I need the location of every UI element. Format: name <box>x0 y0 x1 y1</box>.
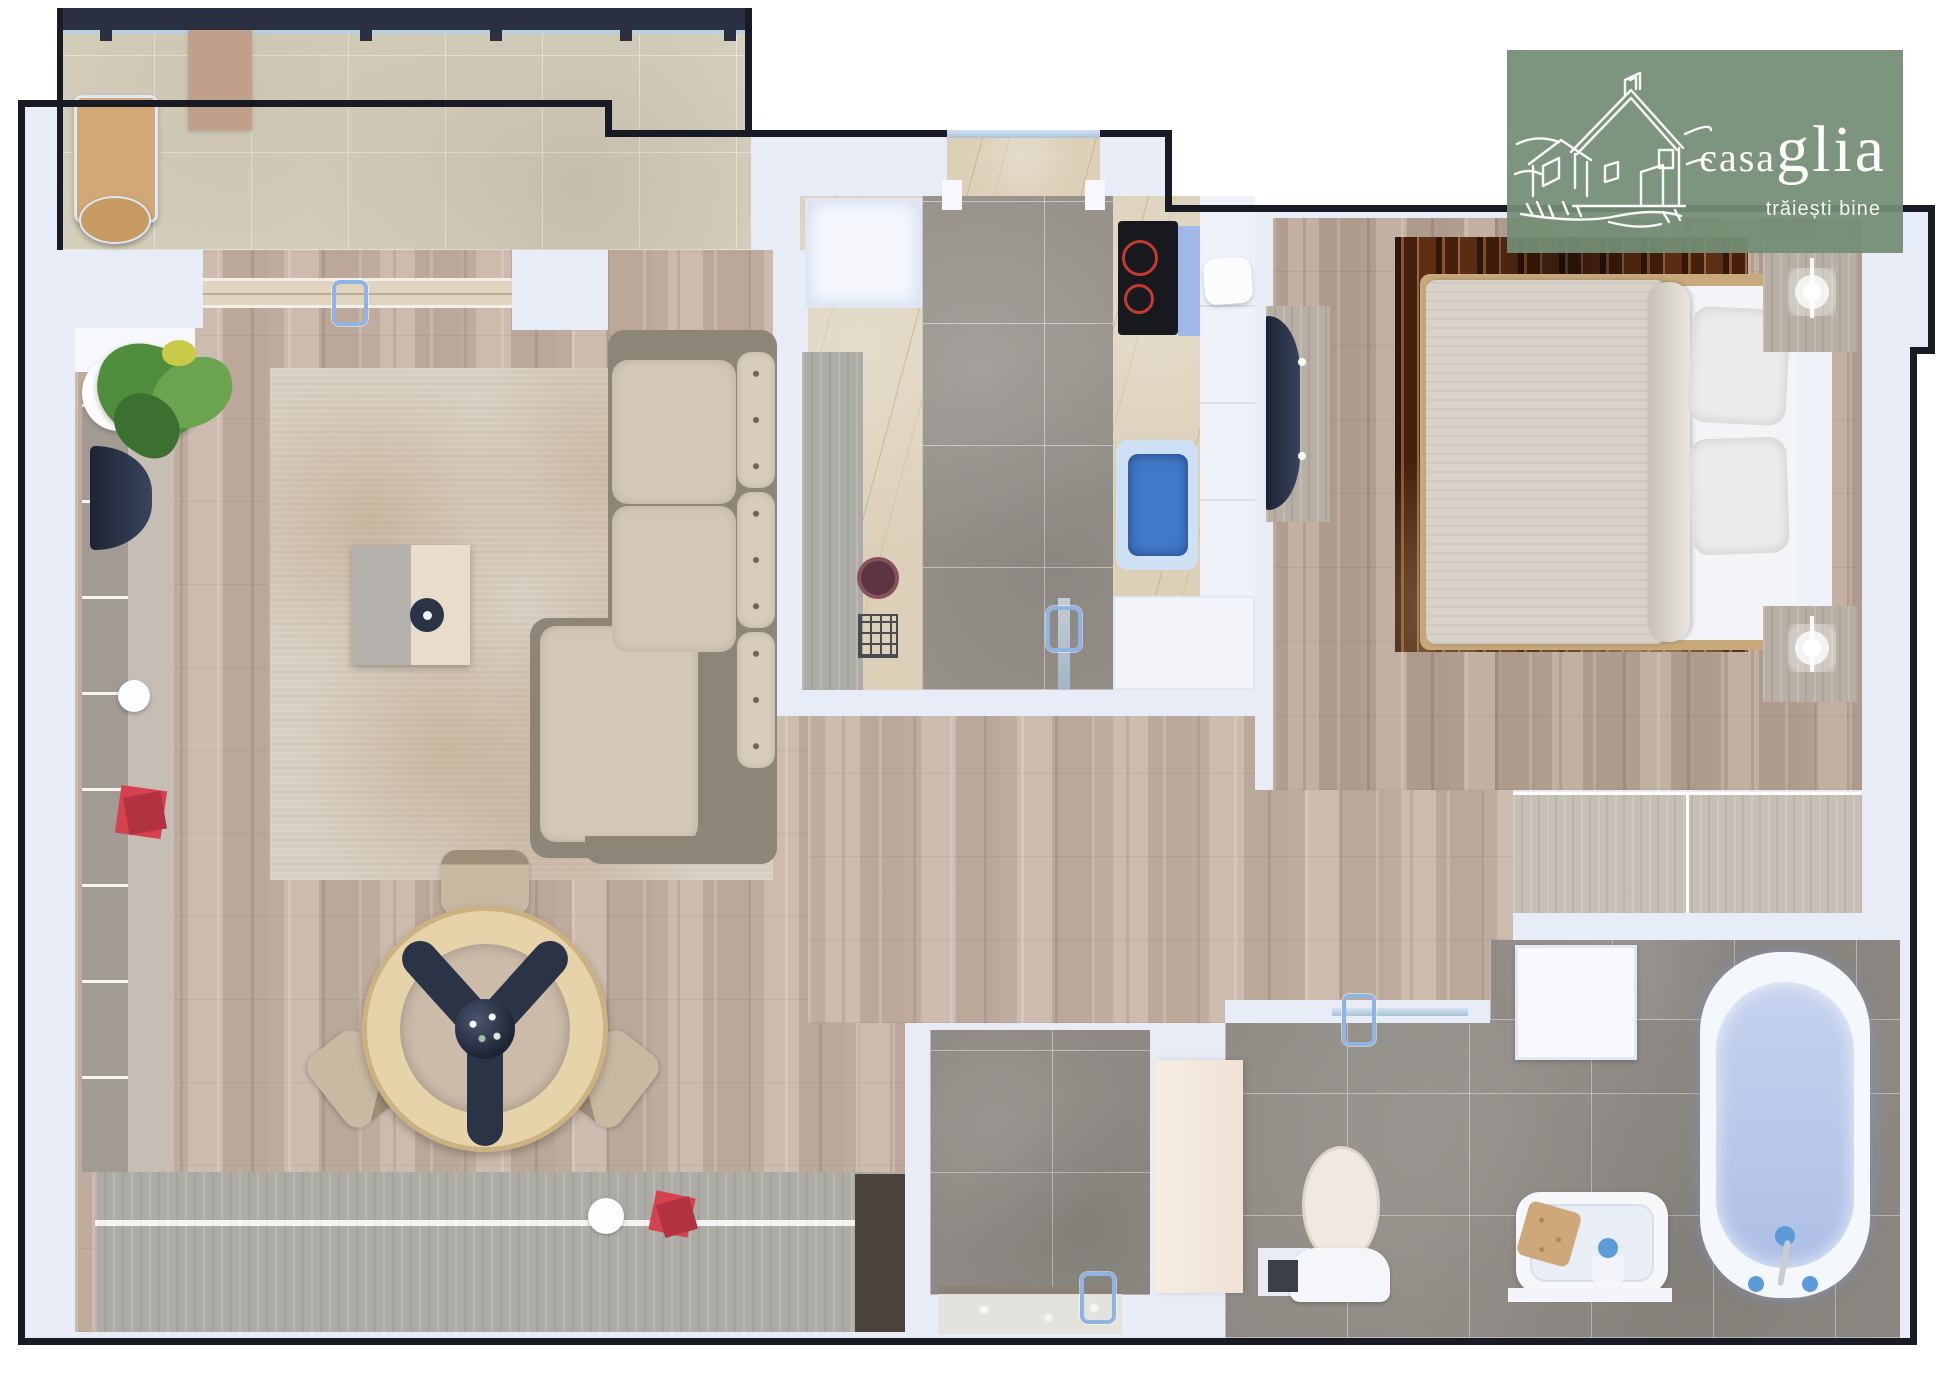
cooktop-side-panel <box>1178 226 1200 336</box>
kitchen-floor <box>922 196 1113 690</box>
sink-faucet-dot <box>1598 1238 1618 1258</box>
tub-knob <box>1748 1276 1764 1292</box>
railing-post <box>620 28 632 41</box>
floor-plan-render: casaglia trăiești bine <box>0 0 1954 1378</box>
lounger-seat-end <box>79 196 151 244</box>
wc-step-niche <box>1268 1260 1298 1292</box>
logo-house-icon <box>1513 54 1713 254</box>
toilet-bowl <box>1302 1146 1380 1264</box>
door-panel <box>1155 1060 1243 1293</box>
balcony-wall-left-edge <box>57 8 63 250</box>
balcony-door-handle <box>332 280 368 326</box>
tub-knob <box>1802 1276 1818 1292</box>
sideboard-edge <box>95 1220 905 1226</box>
shower-room-floor <box>930 1030 1150 1295</box>
tv-stand-knob <box>1298 358 1306 366</box>
balcony-wall-right-edge <box>745 8 752 133</box>
outline-left <box>18 100 25 1345</box>
tv-stand-knob <box>1298 452 1306 460</box>
counter-stool-cushion <box>1202 256 1253 305</box>
wardrobe-seam <box>1686 792 1689 913</box>
logo-brand: casaglia <box>1699 112 1887 188</box>
wall-shower-left <box>905 1023 930 1338</box>
drying-rack <box>858 614 898 658</box>
outline-right-lower <box>1910 354 1917 1345</box>
vanity-ledge <box>1508 1288 1672 1302</box>
logo-tagline: trăiești bine <box>1766 198 1881 221</box>
bathroom-door-handle <box>1342 994 1376 1046</box>
outline-top-left <box>18 100 608 107</box>
kitchen-window-bay <box>947 137 1100 196</box>
outline-bottom <box>18 1338 1917 1345</box>
outline-right-upper <box>1928 205 1935 354</box>
cooktop <box>1118 221 1178 335</box>
bed-blanket <box>1426 280 1666 644</box>
sofa-chaise-cushion <box>540 626 698 842</box>
window-frame-tab <box>1085 180 1105 210</box>
window-frame-tab <box>942 180 962 210</box>
wall-above-living-left <box>75 250 203 328</box>
kitchen-board-section <box>802 352 863 690</box>
burner-ring <box>1122 240 1158 276</box>
coffee-table <box>352 545 470 665</box>
table-vase <box>455 999 515 1059</box>
sofa-seat-cushion <box>612 506 736 652</box>
kitchen-base-cabinet <box>1113 596 1255 690</box>
balcony-floor <box>57 8 751 250</box>
logo-brand-casa: casa <box>1699 135 1776 180</box>
shower-door-handle <box>1080 1272 1116 1324</box>
logo-brand-glia: glia <box>1776 113 1887 186</box>
pillow <box>1688 436 1790 555</box>
kitchen-window <box>947 130 1100 138</box>
wall-kitchen-bottom <box>800 690 1258 716</box>
balcony-glass-rail <box>63 30 745 34</box>
blanket-fold <box>1648 282 1690 642</box>
outline-step-2 <box>1165 130 1172 212</box>
wall-above-living-right <box>512 250 608 330</box>
sideboard-dark-cabinet <box>855 1174 905 1332</box>
sofa-back-bolster <box>737 352 775 488</box>
outline-right-step <box>1910 347 1935 354</box>
decor-vase <box>118 680 150 712</box>
coffee-table-tray-dot <box>423 611 432 620</box>
toilet-base <box>1290 1248 1390 1302</box>
sink-tap <box>1592 1256 1624 1282</box>
fridge <box>805 198 922 308</box>
lamp-highlight <box>1810 258 1814 318</box>
lamp-highlight <box>1810 616 1814 672</box>
railing-post <box>490 28 502 41</box>
kitchen-cabinets <box>1200 196 1255 596</box>
bathroom-cabinet <box>1515 945 1637 1060</box>
sofa-back-bolster <box>737 632 775 768</box>
bedroom-tv <box>1266 316 1300 510</box>
kitchen-door-handle <box>1046 606 1082 652</box>
decor-red-book <box>123 791 167 835</box>
plate <box>588 1198 624 1234</box>
railing-post <box>724 28 736 41</box>
bowl <box>857 557 899 599</box>
burner-ring <box>1124 284 1154 314</box>
sofa-frame-bottom <box>585 836 777 864</box>
sofa-back-bolster <box>737 492 775 628</box>
sideboard-counter <box>95 1172 905 1332</box>
railing-post <box>360 28 372 41</box>
logo: casaglia trăiești bine <box>1507 50 1903 253</box>
balcony-mat <box>188 30 252 130</box>
sofa-seat-cushion <box>612 360 736 504</box>
kitchen-sink-basin <box>1128 454 1188 556</box>
railing-post <box>100 28 112 41</box>
